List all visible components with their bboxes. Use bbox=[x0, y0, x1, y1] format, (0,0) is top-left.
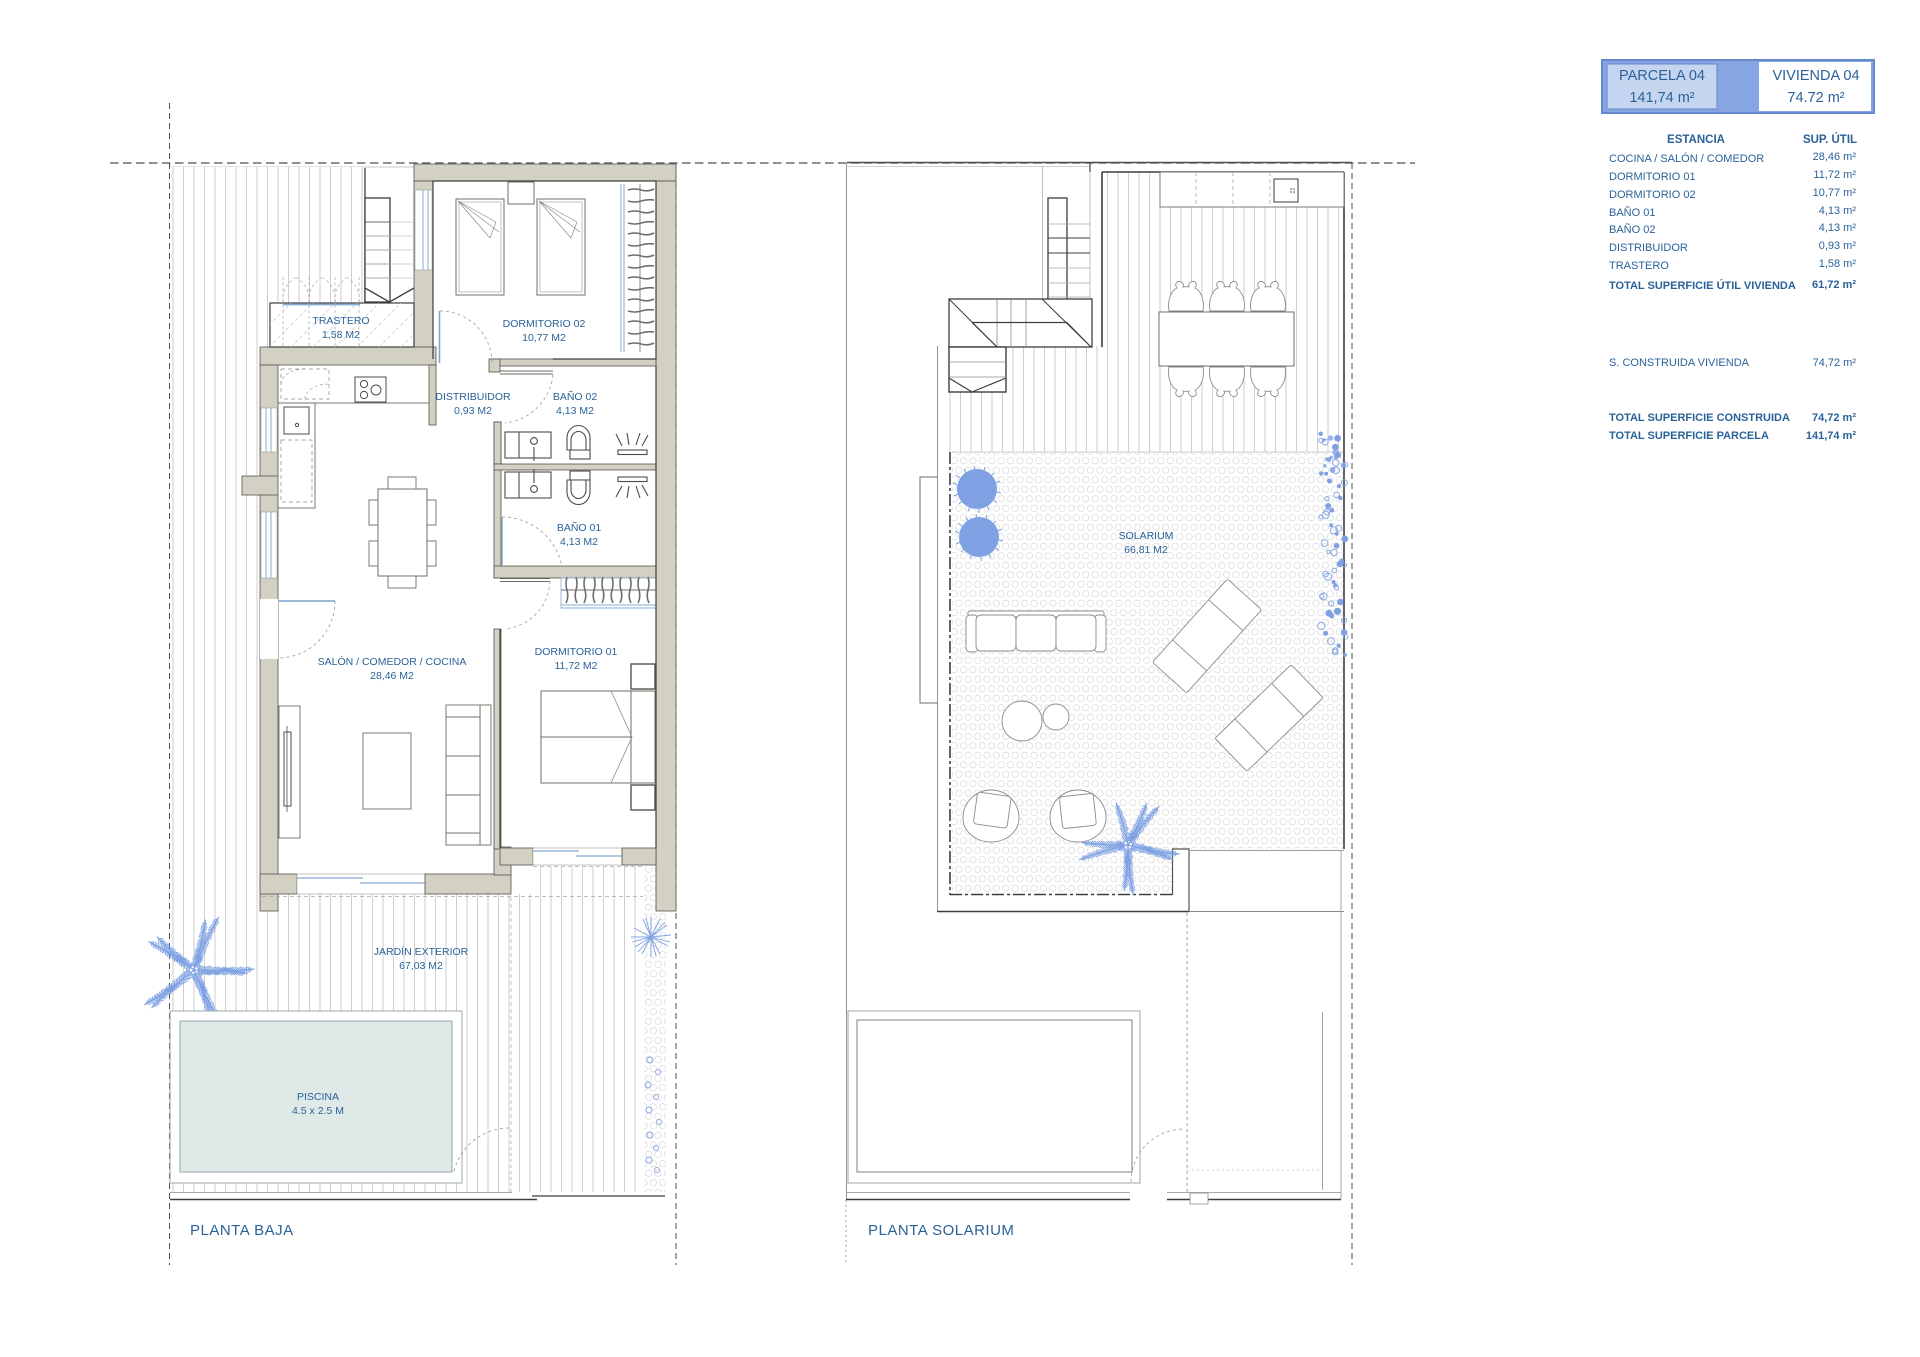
svg-text:1,58 m²: 1,58 m² bbox=[1819, 258, 1857, 270]
svg-text:COCINA / SALÓN / COMEDOR: COCINA / SALÓN / COMEDOR bbox=[1609, 152, 1764, 165]
svg-text:SALÓN / COMEDOR / COCINA: SALÓN / COMEDOR / COCINA bbox=[318, 655, 467, 668]
svg-text:0,93 m²: 0,93 m² bbox=[1819, 240, 1857, 252]
svg-text:DORMITORIO 02: DORMITORIO 02 bbox=[503, 318, 586, 330]
svg-text:BAÑO 01: BAÑO 01 bbox=[557, 521, 602, 534]
svg-text:SUP. ÚTIL: SUP. ÚTIL bbox=[1803, 133, 1857, 146]
svg-text:VIVIENDA 04: VIVIENDA 04 bbox=[1772, 68, 1859, 84]
svg-text:S. CONSTRUIDA VIVIENDA: S. CONSTRUIDA VIVIENDA bbox=[1609, 357, 1750, 369]
svg-text:SOLARIUM: SOLARIUM bbox=[1119, 530, 1174, 542]
svg-text:141,74 m²: 141,74 m² bbox=[1629, 90, 1694, 106]
svg-text:1,58 M2: 1,58 M2 bbox=[322, 329, 360, 341]
svg-text:BAÑO 01: BAÑO 01 bbox=[1609, 206, 1655, 219]
svg-text:10,77 m²: 10,77 m² bbox=[1813, 187, 1857, 199]
svg-text:BAÑO 02: BAÑO 02 bbox=[1609, 223, 1655, 236]
svg-text:PARCELA 04: PARCELA 04 bbox=[1619, 68, 1705, 84]
svg-text:0,93 M2: 0,93 M2 bbox=[454, 405, 492, 417]
svg-text:4,13 m²: 4,13 m² bbox=[1819, 222, 1857, 234]
svg-text:4,13 M2: 4,13 M2 bbox=[560, 536, 598, 548]
svg-text:TRASTERO: TRASTERO bbox=[1609, 260, 1669, 272]
svg-text:DORMITORIO 01: DORMITORIO 01 bbox=[535, 646, 618, 658]
svg-text:28,46 M2: 28,46 M2 bbox=[370, 670, 414, 682]
svg-text:TRASTERO: TRASTERO bbox=[312, 315, 369, 327]
svg-text:74,72 m²: 74,72 m² bbox=[1812, 412, 1856, 424]
svg-text:TOTAL SUPERFICIE PARCELA: TOTAL SUPERFICIE PARCELA bbox=[1609, 430, 1769, 442]
svg-text:11,72 M2: 11,72 M2 bbox=[555, 660, 598, 672]
svg-text:BAÑO 02: BAÑO 02 bbox=[553, 390, 598, 403]
svg-text:74,72 m²: 74,72 m² bbox=[1813, 357, 1857, 369]
svg-text:DORMITORIO 02: DORMITORIO 02 bbox=[1609, 189, 1696, 201]
svg-text:28,46 m²: 28,46 m² bbox=[1813, 151, 1857, 163]
svg-text:74.72 m²: 74.72 m² bbox=[1787, 90, 1844, 106]
svg-text:DISTRIBUIDOR: DISTRIBUIDOR bbox=[435, 391, 511, 403]
svg-text:61,72 m²: 61,72 m² bbox=[1812, 279, 1856, 291]
svg-text:4.5 x 2.5 M: 4.5 x 2.5 M bbox=[292, 1105, 344, 1117]
svg-text:JARDÍN EXTERIOR: JARDÍN EXTERIOR bbox=[374, 945, 469, 958]
svg-text:PLANTA SOLARIUM: PLANTA SOLARIUM bbox=[868, 1222, 1014, 1239]
svg-text:11,72 m²: 11,72 m² bbox=[1813, 169, 1856, 181]
svg-text:4,13 M2: 4,13 M2 bbox=[556, 405, 594, 417]
svg-text:PISCINA: PISCINA bbox=[297, 1091, 339, 1103]
svg-text:DISTRIBUIDOR: DISTRIBUIDOR bbox=[1609, 242, 1688, 254]
svg-text:PLANTA BAJA: PLANTA BAJA bbox=[190, 1222, 294, 1239]
svg-text:ESTANCIA: ESTANCIA bbox=[1667, 134, 1725, 146]
svg-text:TOTAL SUPERFICIE CONSTRUIDA: TOTAL SUPERFICIE CONSTRUIDA bbox=[1609, 412, 1790, 424]
svg-text:141,74 m²: 141,74 m² bbox=[1806, 430, 1856, 442]
svg-text:DORMITORIO 01: DORMITORIO 01 bbox=[1609, 171, 1696, 183]
svg-text:67,03 M2: 67,03 M2 bbox=[399, 960, 443, 972]
svg-text:10,77 M2: 10,77 M2 bbox=[522, 332, 566, 344]
svg-text:TOTAL SUPERFICIE ÚTIL VIVIENDA: TOTAL SUPERFICIE ÚTIL VIVIENDA bbox=[1609, 279, 1796, 292]
svg-text:4,13 m²: 4,13 m² bbox=[1819, 205, 1857, 217]
svg-text:66,81 M2: 66,81 M2 bbox=[1124, 544, 1168, 556]
